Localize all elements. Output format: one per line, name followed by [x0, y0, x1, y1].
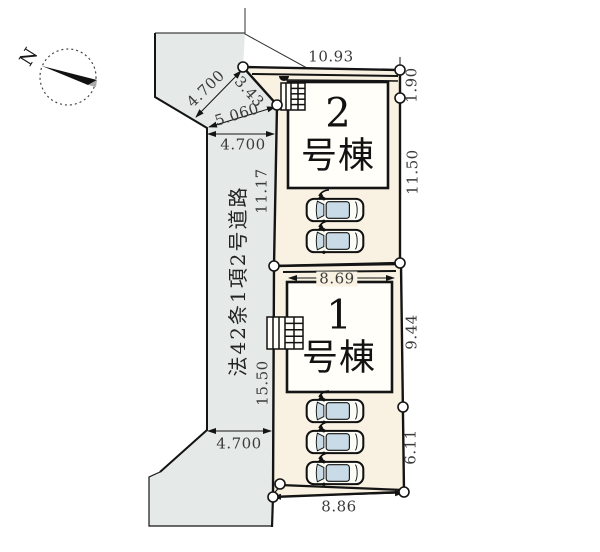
site-plan: N 10.93 1.90 11.50 9.44 6.11 4.700 3.43 …	[0, 0, 600, 552]
dim-plot1-right-lower: 6.11	[404, 429, 419, 464]
building-2-suffix: 号棟	[301, 136, 375, 176]
car-icon	[307, 429, 364, 455]
car-icon	[307, 228, 364, 254]
entrance-steps-icon	[267, 317, 303, 349]
dim-plot2-right-lower: 11.50	[406, 149, 421, 194]
site-plan-drawing	[0, 0, 600, 552]
dim-plot1-bottom: 8.86	[321, 500, 356, 515]
car-icon	[307, 398, 364, 424]
car-icon	[307, 197, 364, 223]
neighbour-boundary-line	[245, 8, 316, 73]
dim-plot1-right-upper: 9.44	[405, 314, 420, 349]
dim-road-width-upper: 4.700	[220, 138, 265, 153]
dim-plot2-top: 10.93	[308, 50, 353, 65]
building-1-number: 1	[302, 293, 376, 338]
compass-icon	[40, 49, 97, 105]
car-icon	[307, 460, 364, 486]
dim-road-width-lower: 4.700	[216, 437, 261, 452]
building-1-label: 1 号棟	[302, 293, 376, 378]
building-2-label: 2 号棟	[301, 91, 375, 176]
dim-plot2-right-upper: 1.90	[405, 67, 420, 102]
dim-plot1-inner-top: 8.69	[316, 272, 357, 287]
building-2-number: 2	[301, 91, 375, 136]
dim-plot2-west: 11.17	[255, 168, 270, 213]
compass-needle	[42, 66, 97, 85]
building-1-suffix: 号棟	[302, 338, 376, 378]
dim-plot1-west: 15.50	[256, 360, 271, 405]
road-name-label: 法42条1項2号道路	[228, 186, 248, 377]
